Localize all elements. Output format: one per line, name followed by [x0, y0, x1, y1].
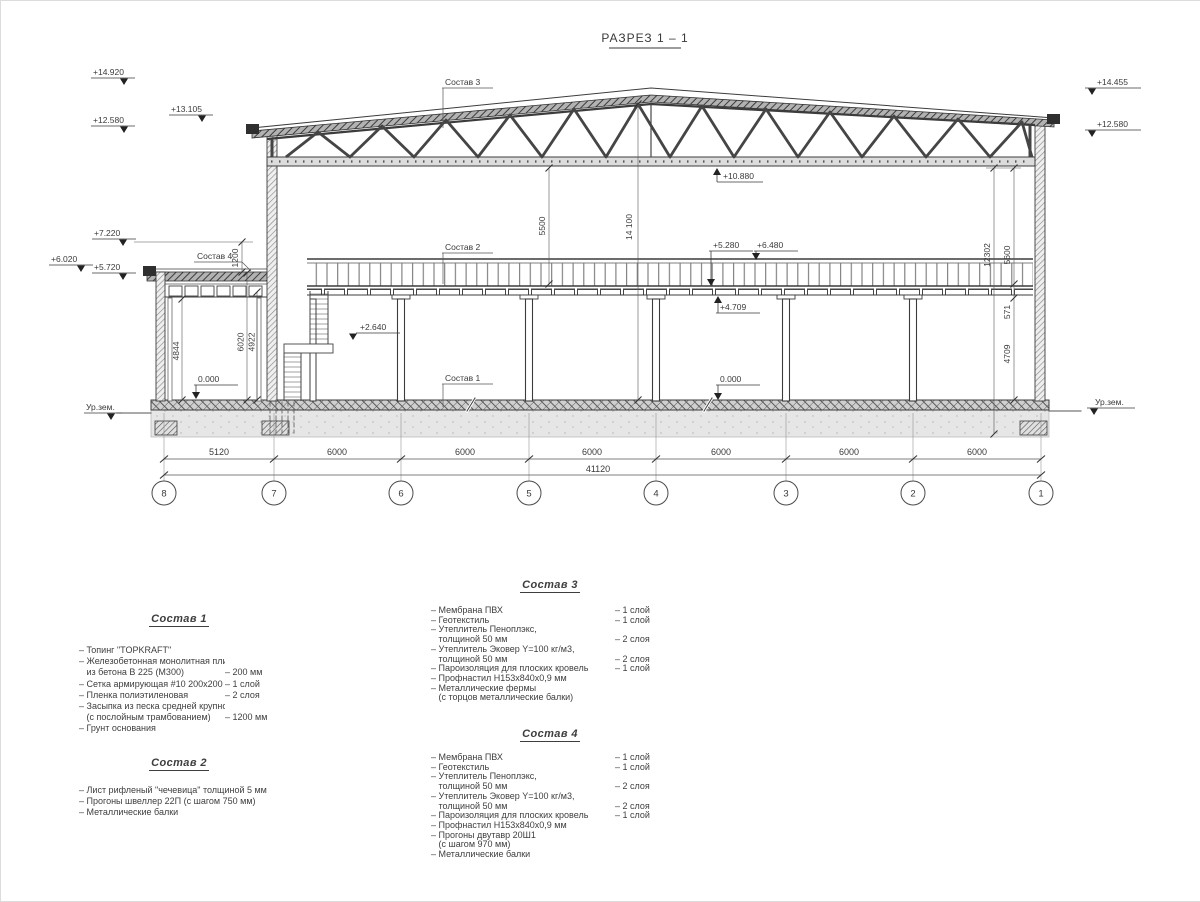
spec-sostav-2: Состав 2 – Лист рифленый "чечевица" толщ…: [79, 757, 279, 819]
dim-14100: 14 100: [624, 214, 634, 240]
dim-4922: 4922: [247, 332, 257, 351]
grid-bubble-label: 8: [161, 489, 166, 500]
svg-text:Состав 3: Состав 3: [445, 77, 481, 87]
spec-heading: Состав 3: [431, 579, 669, 591]
spec-item: – Металлические фермы: [431, 684, 669, 694]
mezzanine-railing: [307, 263, 1033, 286]
spec-item-list: – Мембрана ПВХ – 1 слой – Геотекстиль – …: [431, 753, 669, 860]
spec-heading: Состав 2: [79, 757, 279, 769]
level-truss-left: +12.580: [91, 115, 135, 133]
spec-item-value: – 2 слоя: [615, 635, 669, 645]
spec-item-text: (с шагом 970 мм): [431, 840, 615, 850]
spec-item: – Профнастил Н153х840х0,9 мм: [431, 821, 669, 831]
svg-text:+5.720: +5.720: [94, 262, 121, 272]
spec-heading: Состав 1: [79, 613, 279, 625]
title-block: РАЗРЕЗ 1 – 1: [601, 31, 688, 48]
svg-text:Состав 4: Состав 4: [197, 251, 233, 261]
level-annex-top: +7.220: [92, 228, 136, 246]
spec-item-value: [615, 693, 669, 703]
grid-bubble-label: 5: [526, 489, 531, 500]
annex-left-wall: [156, 272, 165, 401]
dim-4709: 4709: [1002, 344, 1012, 363]
spec-item-text: толщиной 50 мм: [431, 655, 615, 665]
spec-item-value: [615, 840, 669, 850]
spec-item: – Грунт основания: [79, 723, 279, 734]
spec-item-text: толщиной 50 мм: [431, 802, 615, 812]
svg-text:+10.880: +10.880: [723, 171, 754, 181]
spec-item-text: – Железобетонная монолитная плита: [79, 656, 225, 667]
grid-bubble-label: 3: [783, 489, 788, 500]
spec-item-value: [615, 821, 669, 831]
spec-item-text: – Утеплитель Пеноплэкс,: [431, 625, 615, 635]
stair-landing: [284, 344, 333, 353]
spec-item-value: [225, 656, 279, 667]
level-floor-main: 0.000: [714, 374, 760, 400]
spec-item-text: – Пароизоляция для плоских кровель: [431, 664, 615, 674]
spec-item: – Железобетонная монолитная плита: [79, 656, 279, 667]
spec-sostav-1: Состав 1 – Топинг "TOPKRAFT" – Железобет…: [79, 613, 279, 735]
spec-item-value: [225, 645, 279, 656]
span-dim: 6000: [327, 447, 347, 457]
spec-item-text: – Лист рифленый "чечевица" толщиной 5 мм: [79, 785, 279, 796]
spec-item-text: – Мембрана ПВХ: [431, 753, 615, 763]
spec-item-text: толщиной 50 мм: [431, 635, 615, 645]
foundation-pad: [262, 421, 289, 435]
spec-item: – Профнастил Н153х840х0,9 мм: [431, 674, 669, 684]
spec-item: (с шагом 970 мм): [431, 840, 669, 850]
spec-item-value: – 1 слой: [615, 811, 669, 821]
spec-item-value: – 1 слой: [615, 664, 669, 674]
spec-item-text: – Профнастил Н153х840х0,9 мм: [431, 821, 615, 831]
spec-item-text: – Геотекстиль: [431, 616, 615, 626]
spec-sostav-4: Состав 4 – Мембрана ПВХ – 1 слой – Геоте…: [431, 728, 669, 860]
spec-item-value: – 2 слоя: [225, 690, 279, 701]
spec-item: толщиной 50 мм – 2 слоя: [431, 782, 669, 792]
svg-text:+14.455: +14.455: [1097, 77, 1128, 87]
spec-item-text: – Сетка армирующая #10 200х200 мм: [79, 679, 225, 690]
dim-4844: 4844: [171, 341, 181, 360]
spec-item: (с послойным трамбованием) – 1200 мм: [79, 712, 279, 723]
annex-ceiling-beams: [169, 286, 262, 296]
level-ridge-right: +14.455: [1085, 77, 1141, 95]
span-dim: 6000: [582, 447, 602, 457]
span-dim: 5120: [209, 447, 229, 457]
spec-item-value: – 200 мм: [225, 667, 279, 678]
spec-item-list: – Лист рифленый "чечевица" толщиной 5 мм…: [79, 785, 279, 819]
spec-item-list: – Мембрана ПВХ – 1 слой – Геотекстиль – …: [431, 606, 669, 703]
spec-item-text: – Утеплитель Эковер Y=100 кг/м3,: [431, 645, 615, 655]
grid-bubble-label: 4: [653, 489, 658, 500]
spec-item-text: (с торцов металлические балки): [431, 693, 615, 703]
spec-item: – Лист рифленый "чечевица" толщиной 5 мм: [79, 785, 279, 796]
spec-item-text: из бетона В 225 (М300): [79, 667, 225, 678]
spec-item-value: [615, 674, 669, 684]
svg-text:+2.640: +2.640: [360, 322, 387, 332]
spec-item: (с торцов металлические балки): [431, 693, 669, 703]
span-dim: 6000: [711, 447, 731, 457]
level-eave-left: +13.105: [169, 104, 213, 122]
spec-item-text: – Пароизоляция для плоских кровель: [431, 811, 615, 821]
spec-item: – Геотекстиль – 1 слой: [431, 763, 669, 773]
main-right-wall: [1035, 122, 1045, 401]
svg-text:+4.709: +4.709: [720, 302, 747, 312]
spec-sostav-3: Состав 3 – Мембрана ПВХ – 1 слой – Геоте…: [431, 579, 669, 703]
total-dim: 41120: [586, 464, 610, 474]
spec-item-value: [615, 831, 669, 841]
spec-item-text: толщиной 50 мм: [431, 782, 615, 792]
foundation-pad: [1020, 421, 1047, 435]
mezzanine-columns: [310, 295, 922, 401]
callout-sostav-4: Состав 4: [194, 251, 251, 271]
section-drawing: РАЗРЕЗ 1 – 1: [1, 1, 1200, 561]
spec-item-text: – Металлические фермы: [431, 684, 615, 694]
svg-text:Состав 2: Состав 2: [445, 242, 481, 252]
spec-item: – Металлические балки: [431, 850, 669, 860]
ground: [117, 398, 1081, 437]
spec-item: – Металлические балки: [79, 807, 279, 818]
dim-5600: 5600: [1002, 245, 1012, 264]
drawing-sheet: РАЗРЕЗ 1 – 1: [0, 0, 1200, 902]
spec-item-text: – Утеплитель Эковер Y=100 кг/м3,: [431, 792, 615, 802]
spec-item-text: – Геотекстиль: [431, 763, 615, 773]
span-dim: 6000: [455, 447, 475, 457]
dim-6020: 6020: [236, 332, 246, 351]
spec-item-value: – 1200 мм: [225, 712, 279, 723]
spec-item-value: [615, 850, 669, 860]
span-dim: 6000: [839, 447, 859, 457]
page-title: РАЗРЕЗ 1 – 1: [601, 31, 688, 45]
svg-text:+5.280: +5.280: [713, 240, 740, 250]
spec-item: – Пленка полиэтиленовая – 2 слоя: [79, 690, 279, 701]
spec-item-text: – Топинг "TOPKRAFT": [79, 645, 225, 656]
spec-heading: Состав 4: [431, 728, 669, 740]
spec-item: – Сетка армирующая #10 200х200 мм – 1 сл…: [79, 679, 279, 690]
spec-item-text: – Профнастил Н153х840х0,9 мм: [431, 674, 615, 684]
level-rail-top: +6.480: [752, 240, 798, 260]
level-truss-bottom: +10.880: [713, 168, 763, 182]
grid-bubble-label: 1: [1038, 489, 1043, 500]
grid-bubble-label: 7: [271, 489, 276, 500]
spec-item-text: – Пленка полиэтиленовая: [79, 690, 225, 701]
dim-571: 571: [1002, 305, 1012, 319]
dim-5500: 5500: [537, 216, 547, 235]
spec-item: – Пароизоляция для плоских кровель – 1 с…: [431, 664, 669, 674]
spec-item: – Прогоны швеллер 22П (с шагом 750 мм): [79, 796, 279, 807]
spec-item-text: – Мембрана ПВХ: [431, 606, 615, 616]
spec-item-value: [225, 723, 279, 734]
dim-12302: 12302: [982, 243, 992, 267]
spec-item-list: – Топинг "TOPKRAFT" – Железобетонная мон…: [79, 645, 279, 735]
svg-text:+6.020: +6.020: [51, 254, 78, 264]
level-landing: +2.640: [349, 322, 400, 340]
spec-item: – Прогоны двутавр 20Ш1: [431, 831, 669, 841]
level-annex-roof: +6.020: [49, 254, 93, 272]
svg-text:0.000: 0.000: [720, 374, 742, 384]
spec-item-text: – Металлические балки: [79, 807, 279, 818]
svg-text:+13.105: +13.105: [171, 104, 202, 114]
spec-item-value: – 1 слой: [615, 616, 669, 626]
spec-item-text: – Грунт основания: [79, 723, 225, 734]
svg-text:+6.480: +6.480: [757, 240, 784, 250]
svg-text:+12.580: +12.580: [93, 115, 124, 125]
spec-item-value: [225, 701, 279, 712]
svg-text:+14.920: +14.920: [93, 67, 124, 77]
spec-item: – Топинг "TOPKRAFT": [79, 645, 279, 656]
span-dim: 6000: [967, 447, 987, 457]
svg-text:+7.220: +7.220: [94, 228, 121, 238]
spec-item-text: – Прогоны двутавр 20Ш1: [431, 831, 615, 841]
level-truss-right: +12.580: [1085, 119, 1141, 137]
svg-text:0.000: 0.000: [198, 374, 220, 384]
svg-text:Ур.зем.: Ур.зем.: [1095, 397, 1124, 407]
stairs: [284, 291, 333, 401]
grid-bubble-label: 2: [910, 489, 915, 500]
spec-item-text: – Прогоны швеллер 22П (с шагом 750 мм): [79, 796, 279, 807]
spec-item-text: – Металлические балки: [431, 850, 615, 860]
spec-item-text: – Утеплитель Пеноплэкс,: [431, 772, 615, 782]
main-left-wall: [267, 132, 277, 401]
spec-item: – Пароизоляция для плоских кровель – 1 с…: [431, 811, 669, 821]
grid-bubbles: 8 7 6 5 4 3 2 1: [152, 481, 1053, 505]
svg-text:Ур.зем.: Ур.зем.: [86, 402, 115, 412]
spec-item: – Засыпка из песка средней крупности: [79, 701, 279, 712]
spec-item: – Геотекстиль – 1 слой: [431, 616, 669, 626]
foundation-pad: [155, 421, 177, 435]
level-floor-annex: 0.000: [192, 374, 238, 399]
level-ground-right: Ур.зем.: [1087, 397, 1135, 415]
spec-item: из бетона В 225 (М300) – 200 мм: [79, 667, 279, 678]
level-ridge-left: +14.920: [91, 67, 135, 85]
level-beam-bottom: +4.709: [714, 296, 760, 313]
mezzanine: [307, 259, 1033, 401]
mezzanine-deck: [307, 288, 1033, 295]
spec-item-value: – 1 слой: [225, 679, 279, 690]
level-annex-roof-bottom: +5.720: [92, 262, 136, 280]
spec-item-text: (с послойным трамбованием): [79, 712, 225, 723]
spec-item-value: [615, 684, 669, 694]
svg-text:Состав 1: Состав 1: [445, 373, 481, 383]
spec-item-text: – Засыпка из песка средней крупности: [79, 701, 225, 712]
spec-item-value: – 2 слоя: [615, 782, 669, 792]
spec-item-value: – 1 слой: [615, 763, 669, 773]
grid-bubble-label: 6: [398, 489, 403, 500]
spec-item: толщиной 50 мм – 2 слоя: [431, 635, 669, 645]
level-ground-left: Ур.зем.: [84, 402, 122, 420]
svg-text:+12.580: +12.580: [1097, 119, 1128, 129]
